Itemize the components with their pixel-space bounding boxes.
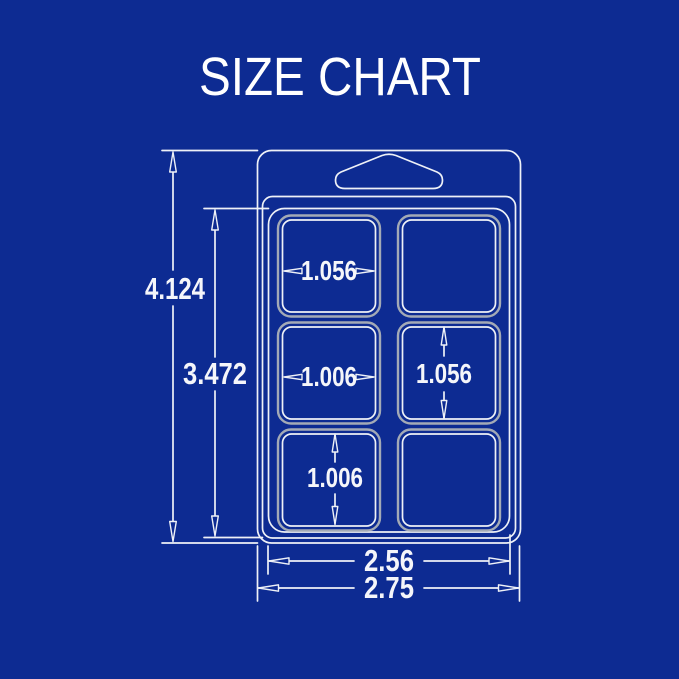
size-chart-page: SIZE CHART 4.124 [0, 0, 679, 679]
dim-label-overall-height: 4.124 [145, 271, 206, 306]
dim-label-cell-width-middle: 1.006 [301, 361, 357, 392]
dim-label-overall-width: 2.75 [364, 570, 414, 605]
dim-label-cell-width-top: 1.056 [301, 255, 357, 286]
size-chart-diagram: SIZE CHART 4.124 [0, 0, 679, 679]
dim-label-cell-height-bottom: 1.006 [307, 462, 363, 493]
dim-label-body-height: 3.472 [183, 356, 247, 391]
dim-label-cell-height-middle: 1.056 [416, 358, 472, 389]
page-title: SIZE CHART [199, 47, 481, 107]
